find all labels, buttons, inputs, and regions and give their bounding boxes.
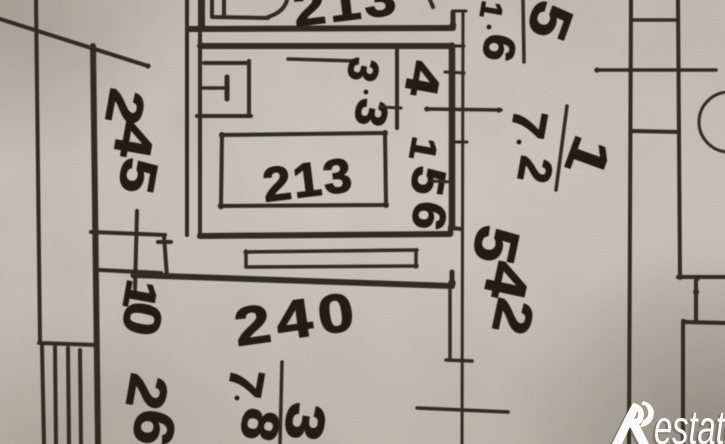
svg-text:213: 213 [260, 148, 357, 212]
svg-text:3: 3 [273, 399, 338, 444]
svg-text:estate: estate [654, 401, 725, 444]
